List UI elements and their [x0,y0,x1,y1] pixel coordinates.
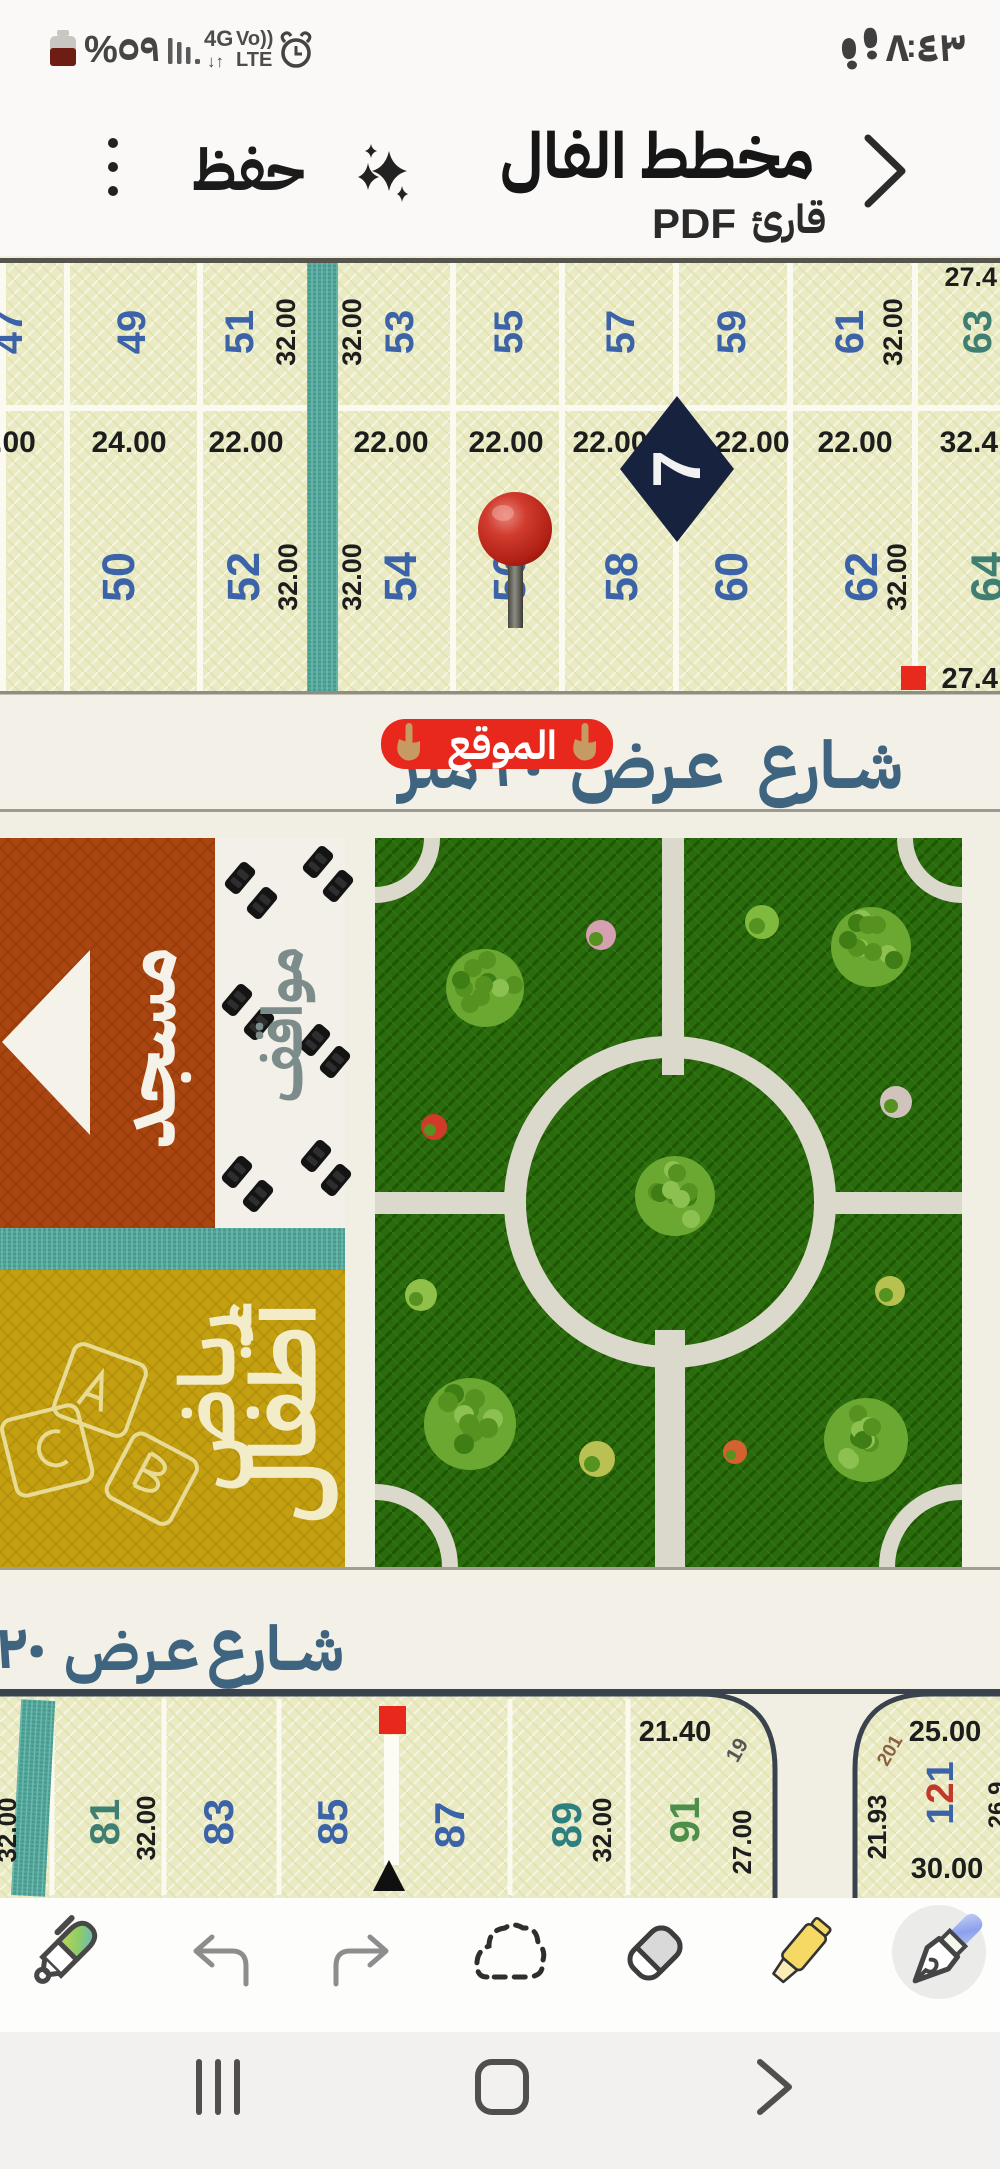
svg-text:32.00: 32.00 [337,543,367,611]
svg-text:83: 83 [195,1799,242,1846]
svg-text:22.00: 22.00 [208,426,283,459]
svg-text:59: 59 [710,310,754,355]
svg-text:32.00: 32.00 [273,543,303,611]
svg-text:32.4: 32.4 [940,426,999,459]
svg-text:89: 89 [543,1802,590,1849]
svg-text:32.00: 32.00 [587,1797,617,1862]
svg-text:22.00: 22.00 [353,426,428,459]
svg-text:54: 54 [375,552,426,602]
svg-text:21.40: 21.40 [639,1716,712,1748]
svg-text:22.00: 22.00 [714,426,789,459]
svg-text:27.4: 27.4 [942,663,998,695]
svg-text:7: 7 [639,450,715,488]
svg-text:62: 62 [836,552,887,602]
svg-text:32.00: 32.00 [337,298,367,366]
svg-text:52: 52 [218,552,269,602]
svg-text:30.00: 30.00 [911,1853,984,1885]
svg-text:51: 51 [218,310,262,355]
svg-text:49: 49 [110,310,154,355]
svg-text:25.00: 25.00 [909,1716,982,1748]
svg-text:32.00: 32.00 [131,1795,161,1860]
svg-text:57: 57 [599,310,643,355]
svg-text:63: 63 [956,310,1000,355]
svg-text:22.00: 22.00 [468,426,543,459]
svg-text:60: 60 [706,552,757,602]
svg-text:32.00: 32.00 [878,298,908,366]
svg-text:61: 61 [828,310,872,355]
svg-text:27.4: 27.4 [944,262,997,292]
svg-text:55: 55 [487,310,531,355]
svg-text:↓↑: ↓↑ [207,52,224,71]
svg-text:64: 64 [962,552,1000,602]
svg-text:21.93: 21.93 [862,1794,892,1859]
svg-text:4G: 4G [204,26,233,51]
svg-text:53: 53 [378,310,422,355]
svg-text:50: 50 [93,552,144,602]
svg-text:87: 87 [426,1802,473,1849]
svg-text:47: 47 [0,310,31,355]
svg-text:58: 58 [596,552,647,602]
svg-text:32.00: 32.00 [0,1797,22,1862]
svg-text:%: % [84,29,118,71]
svg-text:22.00: 22.00 [817,426,892,459]
svg-text:.00: .00 [0,426,36,459]
svg-text:27.00: 27.00 [727,1809,757,1874]
svg-text:32.00: 32.00 [882,543,912,611]
svg-text:32.00: 32.00 [271,298,301,366]
svg-text:24.00: 24.00 [91,426,166,459]
svg-text:85: 85 [309,1799,356,1846]
svg-text::: : [906,28,917,64]
svg-text:PDF: PDF [652,200,736,247]
svg-text:Vo)): Vo)) [236,28,273,50]
svg-text:121: 121 [920,1761,962,1824]
svg-text:26.9: 26.9 [984,1782,1000,1829]
svg-text:LTE: LTE [236,49,272,71]
svg-text:91: 91 [661,1797,708,1844]
svg-text:81: 81 [81,1799,128,1846]
